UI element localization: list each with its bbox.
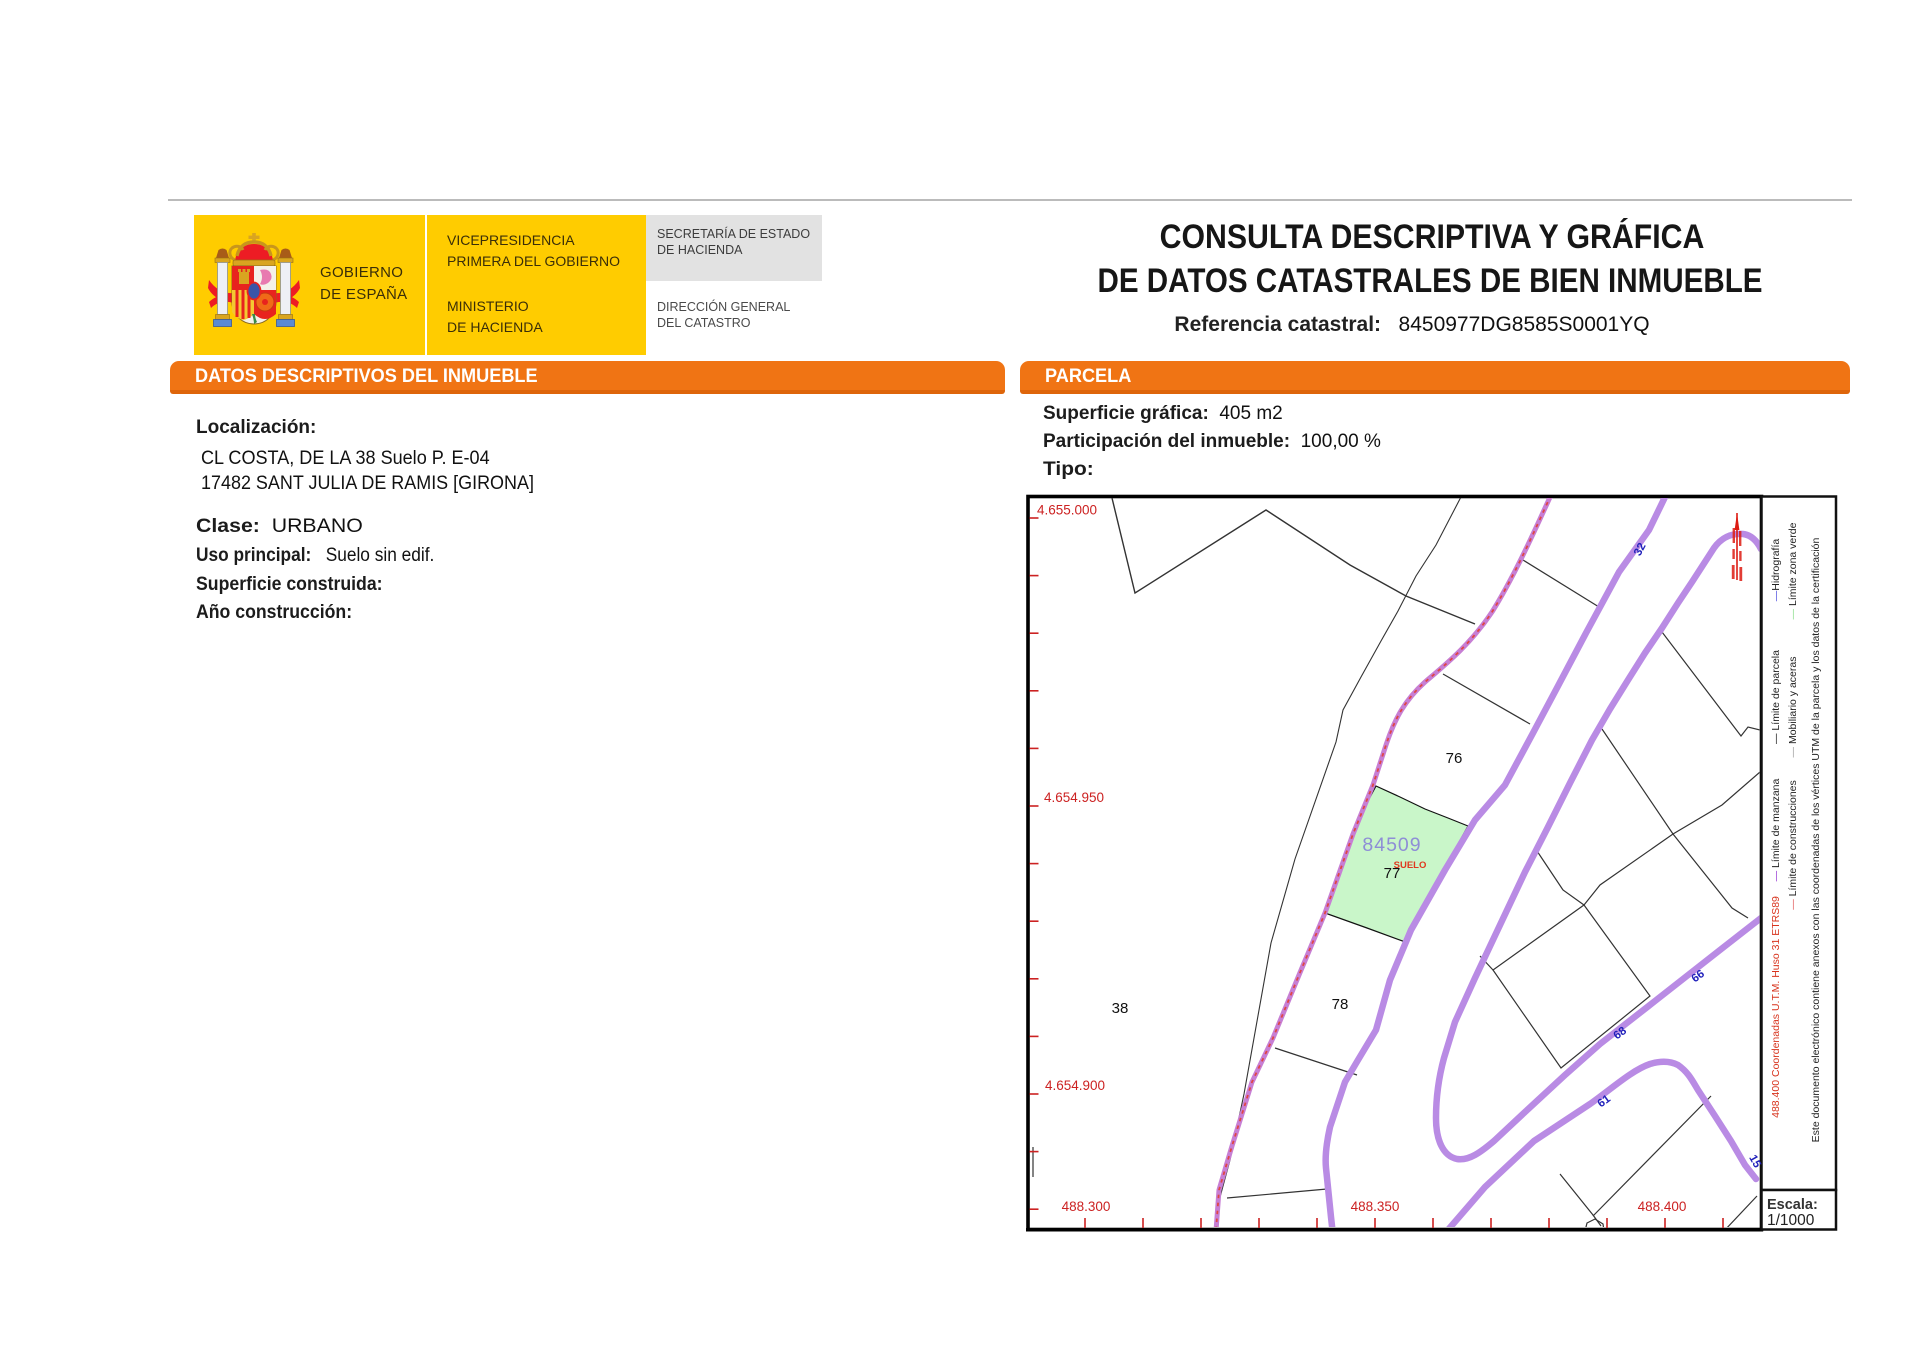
svg-text:1/1000: 1/1000: [1767, 1212, 1815, 1229]
svg-text:38: 38: [1112, 1000, 1129, 1017]
svg-text:—Hidrografía: —Hidrografía: [1770, 539, 1782, 602]
svg-text:76: 76: [1446, 750, 1463, 767]
svg-text:Este documento electrónico con: Este documento electrónico contiene anex…: [1810, 538, 1822, 1143]
svg-text:— Límite de construcciones: — Límite de construcciones: [1787, 780, 1799, 910]
svg-text:— Límite de manzana: — Límite de manzana: [1770, 778, 1782, 881]
svg-text:4.654.900: 4.654.900: [1045, 1078, 1105, 1093]
svg-text:4.654.950: 4.654.950: [1044, 790, 1104, 805]
svg-text:488.400 Coordenadas U.T.M. Hus: 488.400 Coordenadas U.T.M. Huso 31 ETRS8…: [1770, 896, 1782, 1118]
svg-text:— Límite zona verde: — Límite zona verde: [1787, 522, 1799, 619]
svg-text:— Mobiliario y aceras: — Mobiliario y aceras: [1787, 657, 1799, 758]
svg-text:488.300: 488.300: [1062, 1199, 1111, 1214]
svg-text:4.655.000: 4.655.000: [1037, 503, 1097, 518]
svg-text:488.400: 488.400: [1638, 1199, 1687, 1214]
svg-text:SUELO: SUELO: [1394, 860, 1427, 871]
svg-text:84509: 84509: [1362, 834, 1421, 856]
svg-text:— Límite de parcela: — Límite de parcela: [1770, 650, 1782, 744]
svg-text:78: 78: [1332, 996, 1349, 1013]
svg-text:Escala:: Escala:: [1767, 1197, 1818, 1213]
svg-text:488.350: 488.350: [1351, 1199, 1400, 1214]
